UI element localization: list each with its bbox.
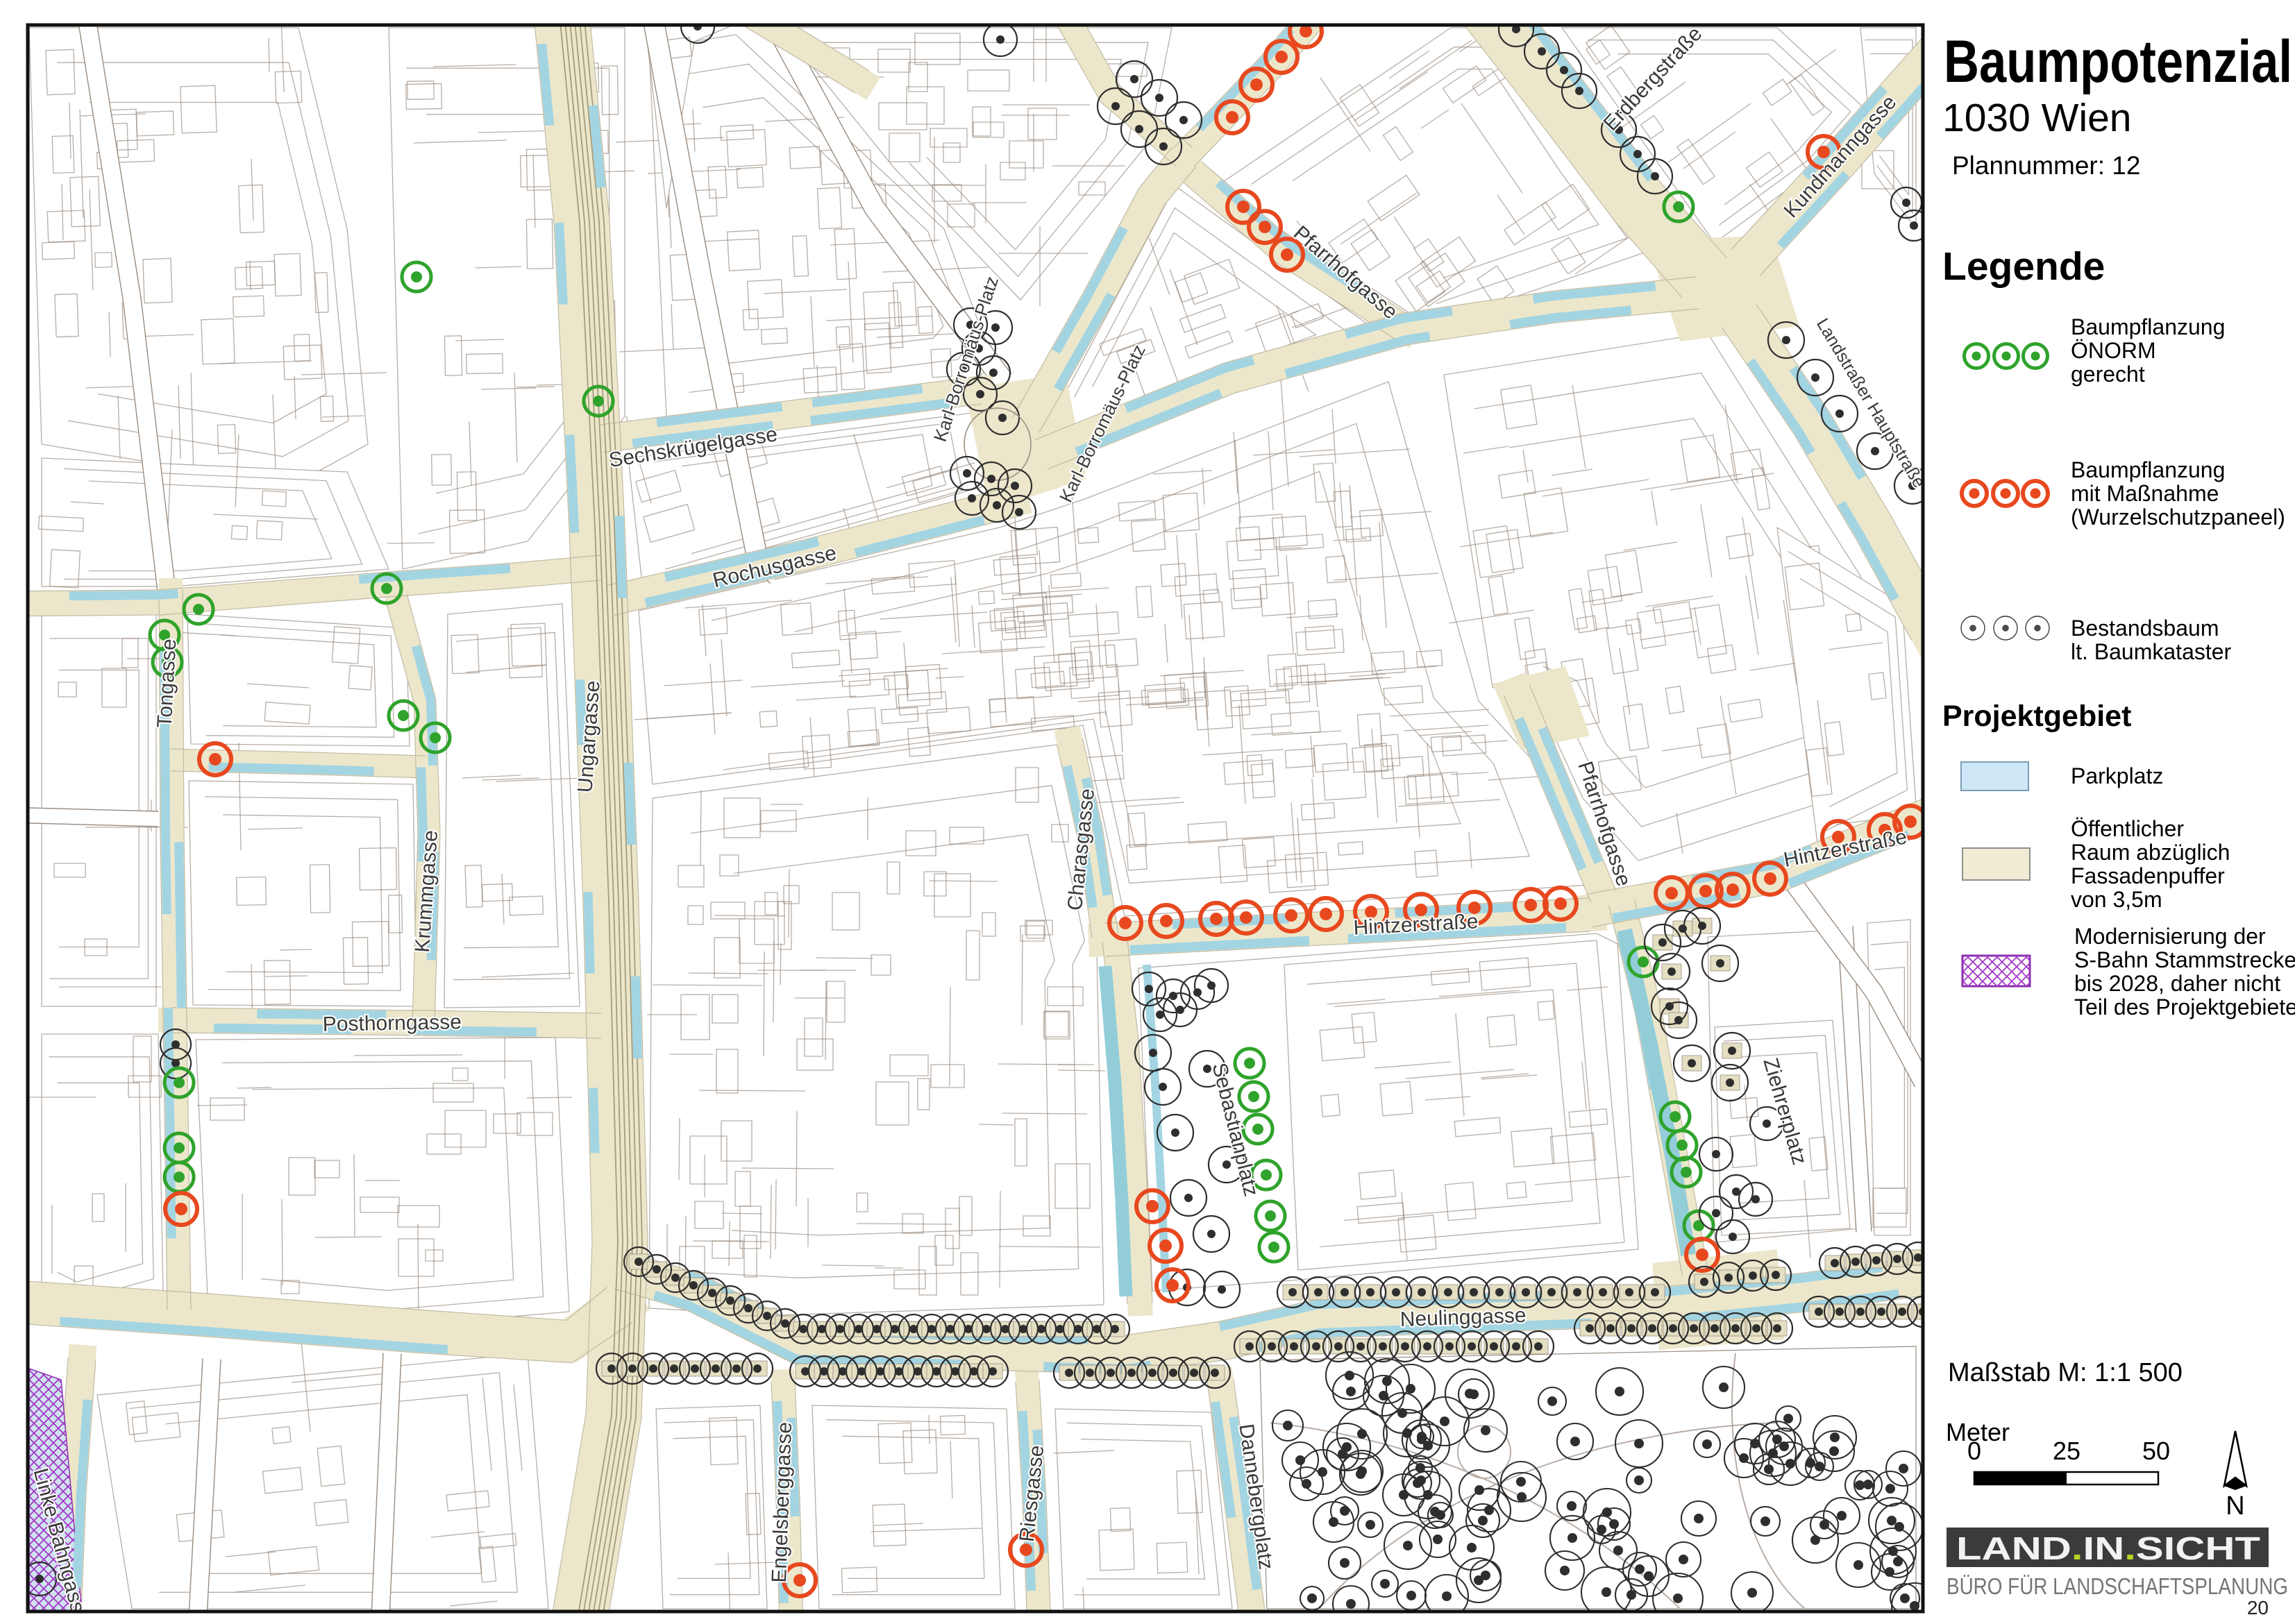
svg-text:mit Maßnahme: mit Maßnahme (2071, 481, 2219, 506)
svg-text:LAND.IN.SICHT: LAND.IN.SICHT (1956, 1530, 2260, 1566)
svg-text:Legende: Legende (1942, 244, 2105, 289)
svg-text:Projektgebiet: Projektgebiet (1942, 700, 2131, 733)
svg-text:Parkplatz: Parkplatz (2071, 763, 2163, 788)
svg-text:ÖNORM: ÖNORM (2071, 338, 2156, 363)
svg-text:(Wurzelschutzpaneel): (Wurzelschutzpaneel) (2071, 505, 2285, 530)
svg-text:Neulinggasse: Neulinggasse (1399, 1304, 1527, 1331)
svg-text:N: N (2226, 1491, 2244, 1521)
svg-text:Raum abzüglich: Raum abzüglich (2071, 840, 2230, 865)
svg-text:0: 0 (1967, 1437, 1981, 1465)
svg-text:25: 25 (2053, 1437, 2080, 1465)
svg-text:Fassadenpuffer: Fassadenpuffer (2071, 863, 2225, 888)
svg-text:1030 Wien: 1030 Wien (1942, 96, 2132, 140)
svg-text:bis 2028, daher nicht: bis 2028, daher nicht (2074, 971, 2280, 996)
svg-text:Posthorngasse: Posthorngasse (322, 1010, 462, 1035)
svg-text:Teil des Projektgebietes: Teil des Projektgebietes (2074, 995, 2295, 1020)
svg-text:S-Bahn Stammstrecke: S-Bahn Stammstrecke (2074, 947, 2295, 972)
svg-text:BÜRO FÜR LANDSCHAFTSPLANUNG: BÜRO FÜR LANDSCHAFTSPLANUNG (1947, 1573, 2288, 1599)
svg-text:Plannummer: 12: Plannummer: 12 (1952, 151, 2140, 180)
svg-text:Modernisierung der: Modernisierung der (2074, 924, 2266, 949)
svg-text:gerecht: gerecht (2071, 362, 2145, 387)
svg-text:Bestandsbaum: Bestandsbaum (2071, 616, 2219, 641)
svg-text:Baumpflanzung: Baumpflanzung (2071, 314, 2225, 339)
svg-text:50: 50 (2142, 1437, 2170, 1465)
svg-text:Maßstab M: 1:1 500: Maßstab M: 1:1 500 (1948, 1358, 2183, 1387)
svg-text:Öffentlicher: Öffentlicher (2071, 816, 2184, 841)
svg-text:lt. Baumkataster: lt. Baumkataster (2071, 639, 2232, 664)
svg-text:Baumpotenzial: Baumpotenzial (1944, 28, 2292, 95)
svg-text:20: 20 (2247, 1597, 2269, 1618)
svg-text:von 3,5m: von 3,5m (2071, 887, 2162, 912)
svg-text:Baumpflanzung: Baumpflanzung (2071, 457, 2225, 482)
svg-text:Tongasse: Tongasse (153, 638, 181, 729)
